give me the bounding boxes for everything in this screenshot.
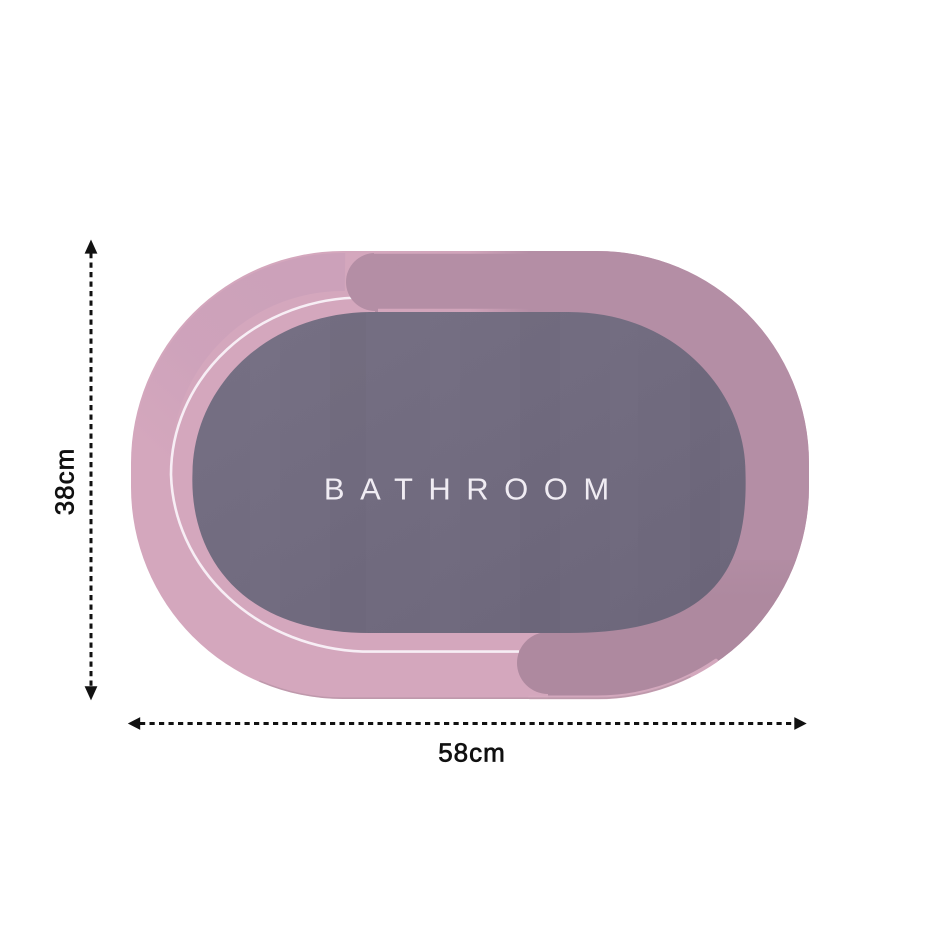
svg-text:58cm: 58cm xyxy=(438,738,506,768)
svg-text:BATHROOM: BATHROOM xyxy=(324,471,625,506)
svg-text:38cm: 38cm xyxy=(50,448,80,516)
